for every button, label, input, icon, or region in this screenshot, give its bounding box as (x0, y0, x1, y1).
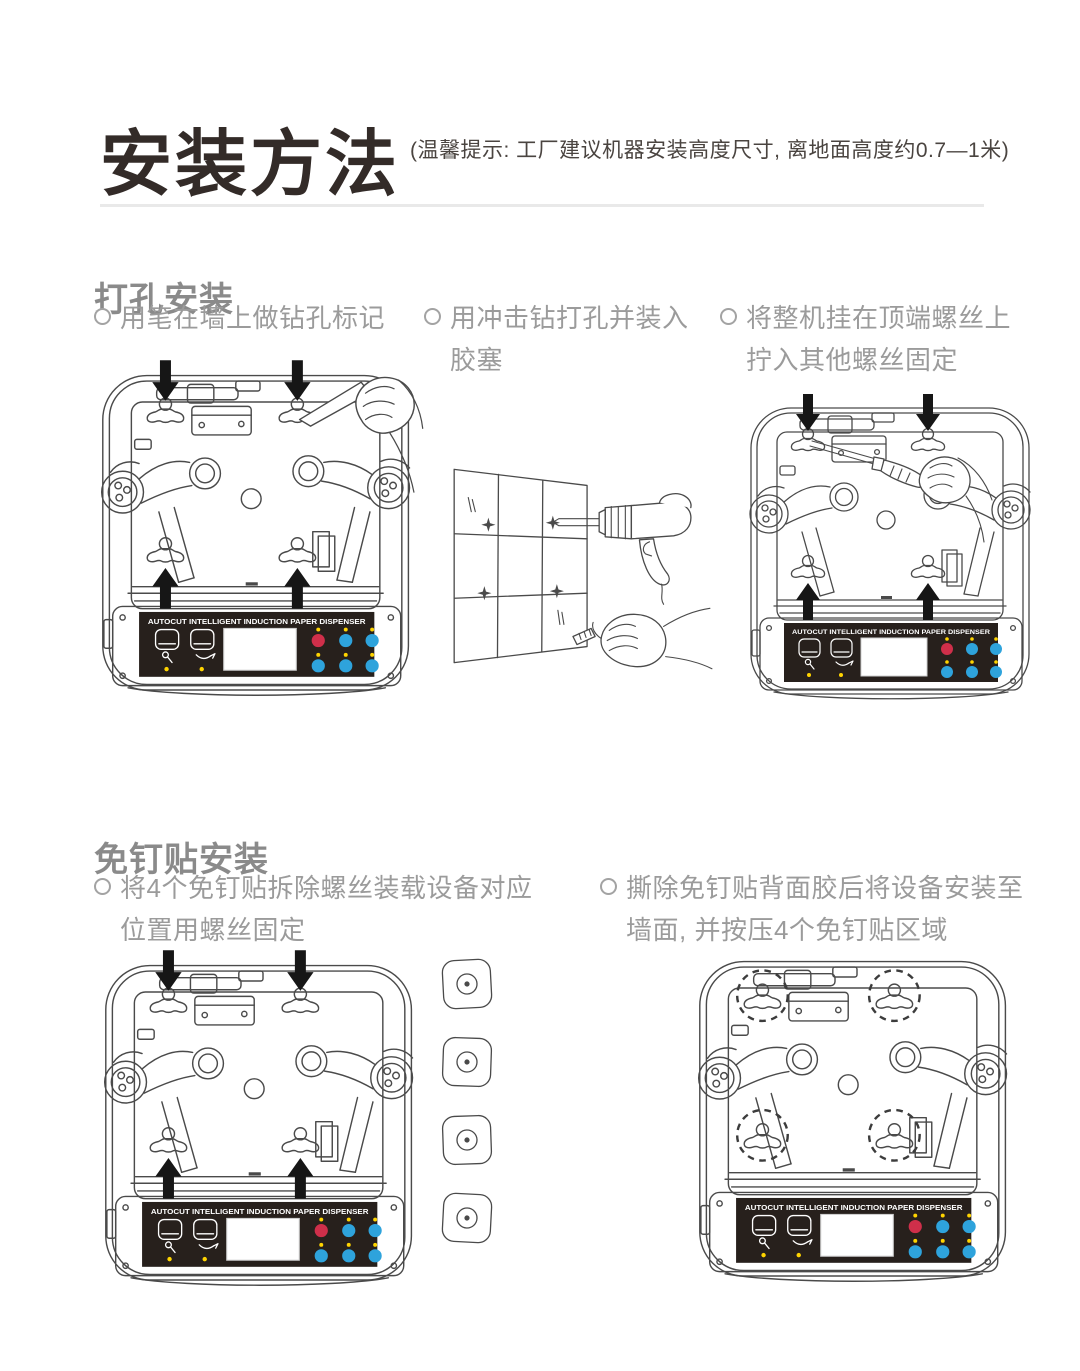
step-bullet-icon (720, 308, 737, 325)
adhesive-pad-icon (442, 959, 492, 1009)
step-bullet-icon (94, 308, 111, 325)
step-item: 用笔在墙上做钻孔标记 (94, 298, 424, 340)
illustration-mark-holes (95, 358, 425, 701)
title-note: (温馨提示: 工厂建议机器安装高度尺寸, 离地面高度约0.7—1米) (410, 134, 1009, 164)
step-text: 将4个免钉贴拆除螺丝装载设备对应 位置用螺丝固定 (120, 868, 532, 951)
wall-grid (454, 469, 587, 662)
step-item: 将整机挂在顶端螺丝上 拧入其他螺丝固定 (720, 298, 1030, 381)
step-item: 撕除免钉贴背面胶后将设备安装至 墙面, 并按压4个免钉贴区域 (600, 868, 1060, 951)
adhesive-pad-icon (442, 1115, 492, 1165)
step-text: 用冲击钻打孔并装入 胶塞 (450, 298, 689, 381)
step-bullet-icon (424, 308, 441, 325)
adhesive-pads-column (430, 956, 504, 1254)
page-title: 安装方法 (100, 126, 400, 205)
drill-mark-icon (477, 586, 491, 600)
page-root: AUTOCUT INTELLIGENT INDUCTION PAPER DISP… (0, 0, 1080, 1371)
section-divider (100, 204, 984, 207)
step-text: 撕除免钉贴背面胶后将设备安装至 墙面, 并按压4个免钉贴区域 (626, 868, 1024, 951)
hand-plug-icon (573, 608, 712, 668)
dispenser-back (699, 962, 1007, 1282)
drill-mark-icon (481, 518, 495, 532)
illustration-press-pad-areas (692, 944, 1022, 1287)
dispenser-back (105, 966, 413, 1286)
illustration-drill-wall (430, 445, 722, 687)
adhesive-pad-icon (442, 1193, 492, 1243)
step-item: 用冲击钻打孔并装入 胶塞 (424, 298, 704, 381)
illustration-attach-pads (98, 948, 428, 1291)
drill-mark-icon (550, 584, 564, 598)
adhesive-pad-icon (442, 1037, 492, 1087)
step-bullet-icon (600, 878, 617, 895)
illustration-hang-and-screw (744, 392, 1044, 704)
wall-scratches (468, 498, 564, 625)
drill-icon (553, 494, 691, 605)
dispenser-back (750, 408, 1030, 699)
step-item: 将4个免钉贴拆除螺丝装载设备对应 位置用螺丝固定 (94, 868, 544, 951)
step-bullet-icon (94, 878, 111, 895)
step-text: 将整机挂在顶端螺丝上 拧入其他螺丝固定 (746, 298, 1011, 381)
step-text: 用笔在墙上做钻孔标记 (120, 298, 385, 340)
